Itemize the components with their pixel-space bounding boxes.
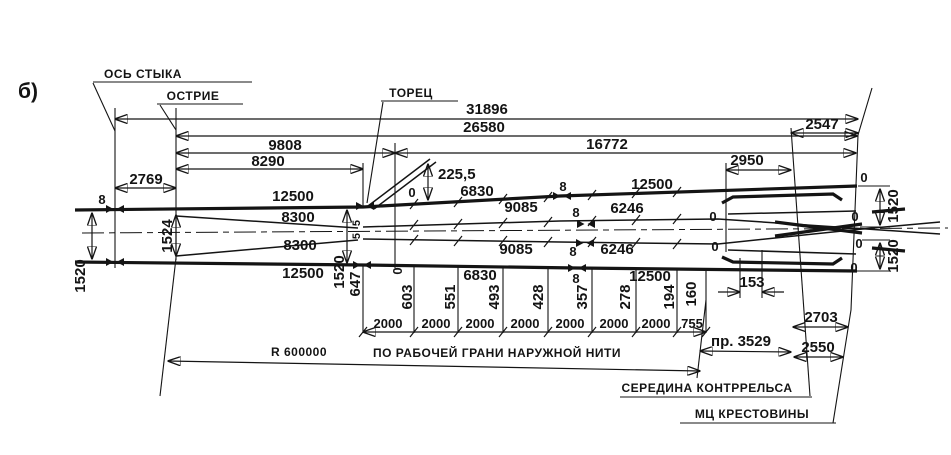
callout-frog-math-center: МЦ КРЕСТОВИНЫ — [695, 407, 809, 421]
dim-overall: 31896 — [466, 101, 508, 118]
dim-front-inner: 8290 — [251, 153, 284, 170]
ordinate-zero: 0 — [860, 170, 867, 185]
ordinate-428: 428 — [530, 284, 547, 309]
figure-label: б) — [18, 80, 38, 103]
rail-closure2-lower: 9085 — [499, 241, 532, 258]
ordinate-zero: 0 — [851, 209, 858, 224]
ordinate-zero: 0 — [709, 209, 716, 224]
ordinate-278: 278 — [617, 284, 634, 309]
rail-switch-lower: 8300 — [283, 237, 316, 254]
dim-front: 9808 — [268, 137, 301, 154]
switch-rail-upper — [176, 216, 358, 228]
ordinate-zero: 0 — [408, 185, 415, 200]
ordinate-647: 647 — [347, 271, 364, 296]
callout-joint-axis: ОСЬ СТЫКА — [104, 67, 182, 81]
ordinate-zero: 0 — [855, 236, 862, 251]
dim-joint-to-point: 2769 — [129, 171, 162, 188]
gap-8: 8 — [572, 271, 579, 286]
step-2000: 2000 — [374, 316, 403, 331]
gauge-1520-right-lower: 1520 — [885, 239, 902, 272]
ordinate-160: 160 — [683, 281, 700, 306]
ordinate-zero: 0 — [390, 267, 405, 274]
gauge-1524-point: 1524 — [159, 219, 176, 253]
radius-value: R 600000 — [271, 345, 327, 359]
dim-tail-upper: 2703 — [804, 309, 837, 326]
rail-closure3-lower: 6246 — [600, 241, 633, 258]
callout-end-face: ТОРЕЦ — [389, 86, 433, 100]
dim-main: 26580 — [463, 119, 505, 136]
step-2000: 2000 — [642, 316, 671, 331]
rail-frame-upper-left: 12500 — [272, 188, 314, 205]
dim-bend-offset: 225,5 — [438, 166, 476, 183]
gap-8: 8 — [569, 244, 576, 259]
rail-closure2-upper: 9085 — [504, 199, 537, 216]
gap-8: 8 — [572, 205, 579, 220]
bent-switch-rail-line — [368, 159, 430, 206]
rail-closure1-lower: 6830 — [463, 267, 496, 284]
callout-point-tip: ОСТРИЕ — [167, 89, 220, 103]
rail-frame-upper-right: 12500 — [631, 176, 673, 193]
gap-5: 5 — [351, 233, 363, 239]
ordinate-zero: 0 — [850, 260, 857, 275]
rail-closure3-upper: 6246 — [610, 200, 643, 217]
rail-closure1-upper: 6830 — [460, 183, 493, 200]
ordinate-194: 194 — [661, 284, 678, 310]
engineering-drawing-turnout-scheme: { "figure_label": "б)", "callouts": { "j… — [0, 0, 951, 455]
step-2000: 2000 — [422, 316, 451, 331]
switch-rail-lower — [176, 240, 358, 256]
gap-8: 8 — [559, 179, 566, 194]
radius-note: ПО РАБОЧЕЙ ГРАНИ НАРУЖНОЙ НИТИ — [373, 345, 621, 360]
dim-tail-lower: 2550 — [801, 339, 834, 356]
guard-rail-upper — [722, 194, 842, 203]
step-755: 755 — [681, 316, 703, 331]
gauge-1520-right-upper: 1520 — [885, 189, 902, 222]
gap-5: 5 — [351, 220, 363, 226]
ordinate-603: 603 — [399, 284, 416, 309]
gap-8: 8 — [98, 192, 105, 207]
ordinate-357: 357 — [574, 284, 591, 309]
step-2000: 2000 — [466, 316, 495, 331]
gauge-1520-left: 1520 — [72, 259, 89, 292]
gauge-1520-heel: 1520 — [331, 255, 348, 288]
rail-frame-lower-right: 12500 — [629, 268, 671, 285]
ordinate-551: 551 — [442, 284, 459, 309]
dim-guard-len: 2950 — [730, 152, 763, 169]
step-2000: 2000 — [511, 316, 540, 331]
dim-straight: пр. 3529 — [711, 333, 771, 350]
step-2000: 2000 — [556, 316, 585, 331]
ordinate-493: 493 — [486, 284, 503, 309]
drawing-canvas: б) ОСЬ СТЫКА ОСТРИЕ ТОРЕЦ СЕРЕДИНА КОНТР… — [0, 0, 951, 455]
callout-guard-rail-middle: СЕРЕДИНА КОНТРРЕЛЬСА — [622, 381, 793, 395]
labels: б) ОСЬ СТЫКА ОСТРИЕ ТОРЕЦ СЕРЕДИНА КОНТР… — [18, 67, 902, 421]
dim-guard-end: 153 — [739, 274, 764, 291]
rail-frame-lower-left: 12500 — [282, 265, 324, 282]
rail-switch-upper: 8300 — [281, 209, 314, 226]
dim-rear: 16772 — [586, 136, 628, 153]
ordinate-zero: 0 — [711, 239, 718, 254]
dim-tail: 2547 — [805, 116, 838, 133]
step-2000: 2000 — [600, 316, 629, 331]
